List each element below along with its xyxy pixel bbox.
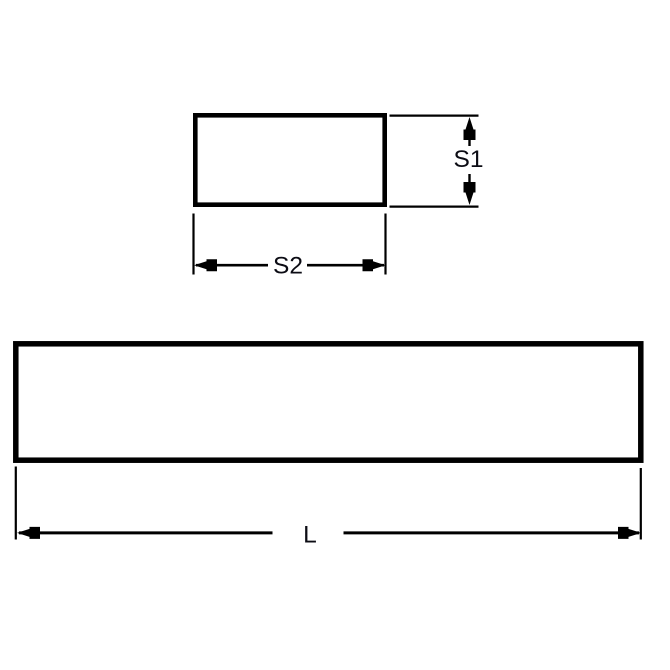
svg-text:L: L [303, 522, 317, 549]
svg-text:S2: S2 [273, 253, 303, 280]
svg-text:S1: S1 [454, 146, 484, 173]
